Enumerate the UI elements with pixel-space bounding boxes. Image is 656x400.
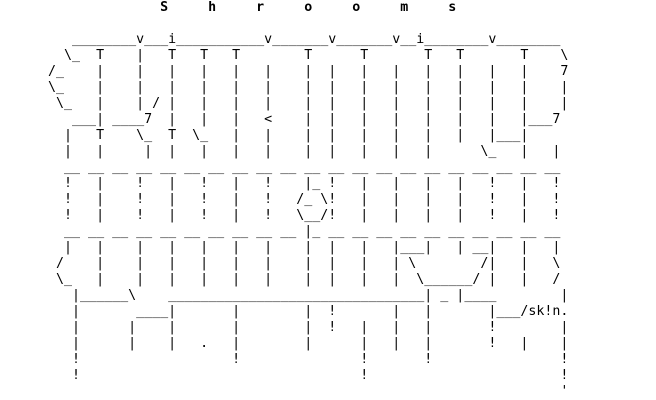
art-row: ! ! ! xyxy=(0,368,656,384)
cube-row: ! | ! | ! | ! \__/! | | | | ! | ! xyxy=(0,208,656,224)
art-row: | | | | | ! | | | ! | xyxy=(0,320,656,336)
art-row: | | | | | | | | | | | | \_ | | xyxy=(0,144,656,160)
signature-row: | ____| | | ! | | |___/sk!n. xyxy=(0,304,656,320)
art-row: \_ | | | | | | | | | | | | | | | xyxy=(0,80,656,96)
art-row: ___| ____7 | | | < | | | | | | | |___7 xyxy=(0,112,656,128)
title-row: S h r o o m s xyxy=(0,0,656,16)
art-row: | | | . | | | | | ! | | xyxy=(0,336,656,352)
ascii-art: S h r o o m s ________v___i___________v_… xyxy=(0,0,656,400)
art-row: ' xyxy=(0,384,656,400)
cube-row: ! | ! | ! | ! /_ \! | | | | ! | ! xyxy=(0,192,656,208)
bowl-row: / | | | | | | | | | | \ /| | \ xyxy=(0,256,656,272)
bowl-row: \_ | | | | | | | | | | \______/ | | / xyxy=(0,272,656,288)
art-row: | | | | | | | | | | |___| | __| | | xyxy=(0,240,656,256)
banner-top-edge: ________v___i___________v_______v_______… xyxy=(0,32,656,48)
art-row: |______\ _______________________________… xyxy=(0,288,656,304)
dashed-divider-row: __ __ __ __ __ __ __ __ __ __ __ __ __ _… xyxy=(0,160,656,176)
art-row: \_ | | / | | | | | | | | | | | | | xyxy=(0,96,656,112)
dashed-divider-row: __ __ __ __ __ __ __ __ __ __ |_ __ __ _… xyxy=(0,224,656,240)
art-row xyxy=(0,16,656,32)
art-row: /_ | | | | | | | | | | | | | | 7 xyxy=(0,64,656,80)
terminal-screen: S h r o o m s ________v___i___________v_… xyxy=(0,0,656,400)
art-row: \_ T | T T T T T T T T \ xyxy=(0,48,656,64)
art-row: | T \_ T \_ | | | | | | | | |___| xyxy=(0,128,656,144)
art-row: ! ! ! ! ! xyxy=(0,352,656,368)
art-row: ! | ! | ! | ! |_ ! | | | | ! | ! xyxy=(0,176,656,192)
